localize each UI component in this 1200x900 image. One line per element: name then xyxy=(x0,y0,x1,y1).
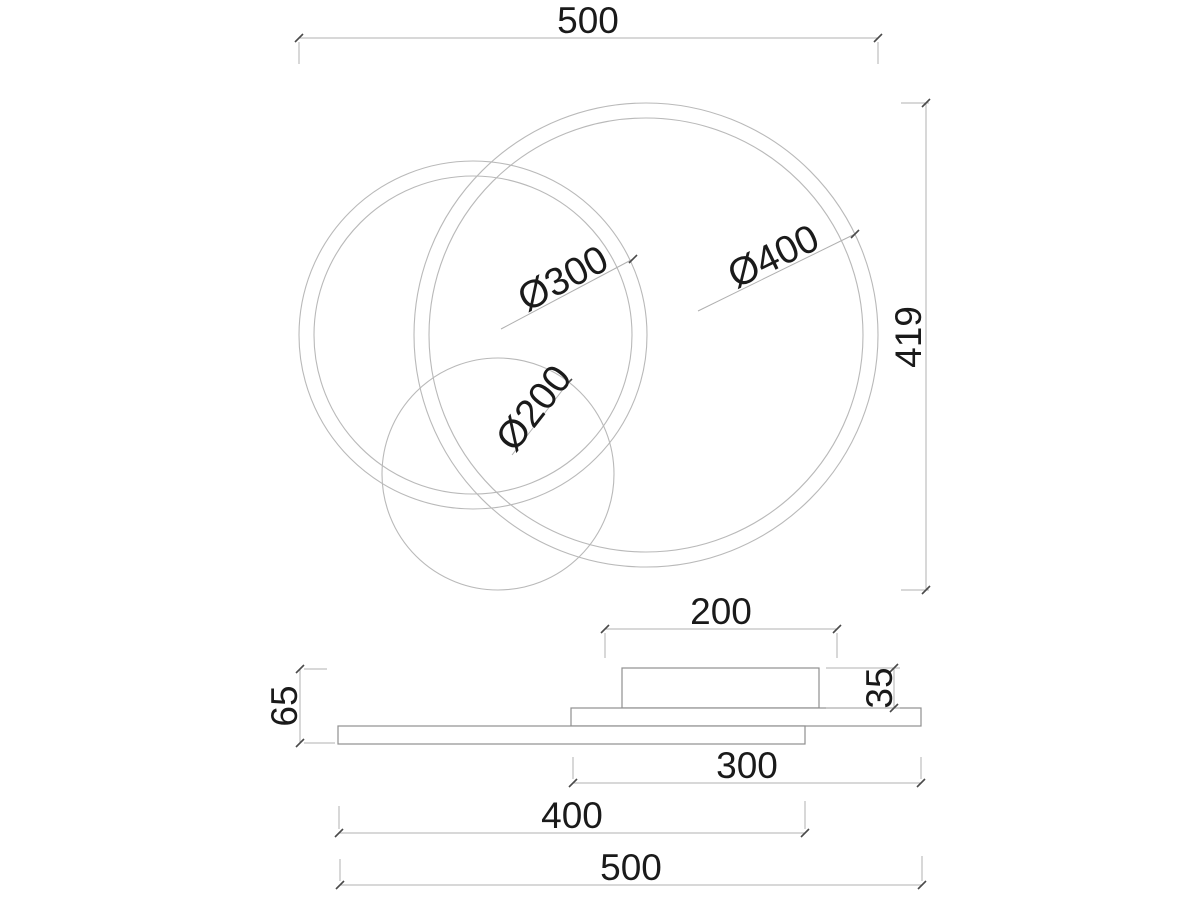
dim-canopy-width-label: 200 xyxy=(690,591,752,632)
middle-plate-profile xyxy=(571,708,921,726)
dim-canopy-height-label: 35 xyxy=(859,667,900,708)
leader-ring-200: Ø200 xyxy=(488,357,581,459)
bottom-plate-profile xyxy=(338,726,805,744)
ring-400-label: Ø400 xyxy=(721,217,826,297)
dim-top-height-label: 419 xyxy=(888,306,929,368)
dim-bottom-plate: 400 xyxy=(335,795,809,837)
leader-ring-400: Ø400 xyxy=(698,217,859,311)
dim-top-width-label: 500 xyxy=(557,0,619,41)
dim-overall-width-label: 500 xyxy=(600,847,662,888)
dim-top-width: 500 xyxy=(295,0,882,64)
technical-drawing: Ø400 Ø300 Ø200 500 xyxy=(0,0,1200,900)
dim-top-height: 419 xyxy=(888,99,930,594)
dim-bottom-plate-label: 400 xyxy=(541,795,603,836)
dim-canopy-height: 35 xyxy=(826,664,900,712)
dim-canopy-width: 200 xyxy=(601,591,841,658)
ring-400-outer-circle xyxy=(414,103,878,567)
dim-overall-height: 65 xyxy=(264,665,335,747)
dim-middle-plate: 300 xyxy=(569,745,925,787)
side-view: 200 35 65 300 xyxy=(264,591,926,889)
canopy-profile xyxy=(622,668,819,708)
ring-300-label: Ø300 xyxy=(511,238,615,321)
dim-middle-plate-label: 300 xyxy=(716,745,778,786)
top-view: Ø400 Ø300 Ø200 500 xyxy=(295,0,930,594)
ring-300-outer-circle xyxy=(299,161,647,509)
ring-200-circle xyxy=(382,358,614,590)
ring-400-inner-circle xyxy=(429,118,863,552)
ring-200-label: Ø200 xyxy=(488,357,581,459)
dim-overall-height-label: 65 xyxy=(264,685,305,726)
leader-ring-300: Ø300 xyxy=(501,238,637,329)
dim-overall-width: 500 xyxy=(336,847,926,889)
ring-300-inner-circle xyxy=(314,176,632,494)
